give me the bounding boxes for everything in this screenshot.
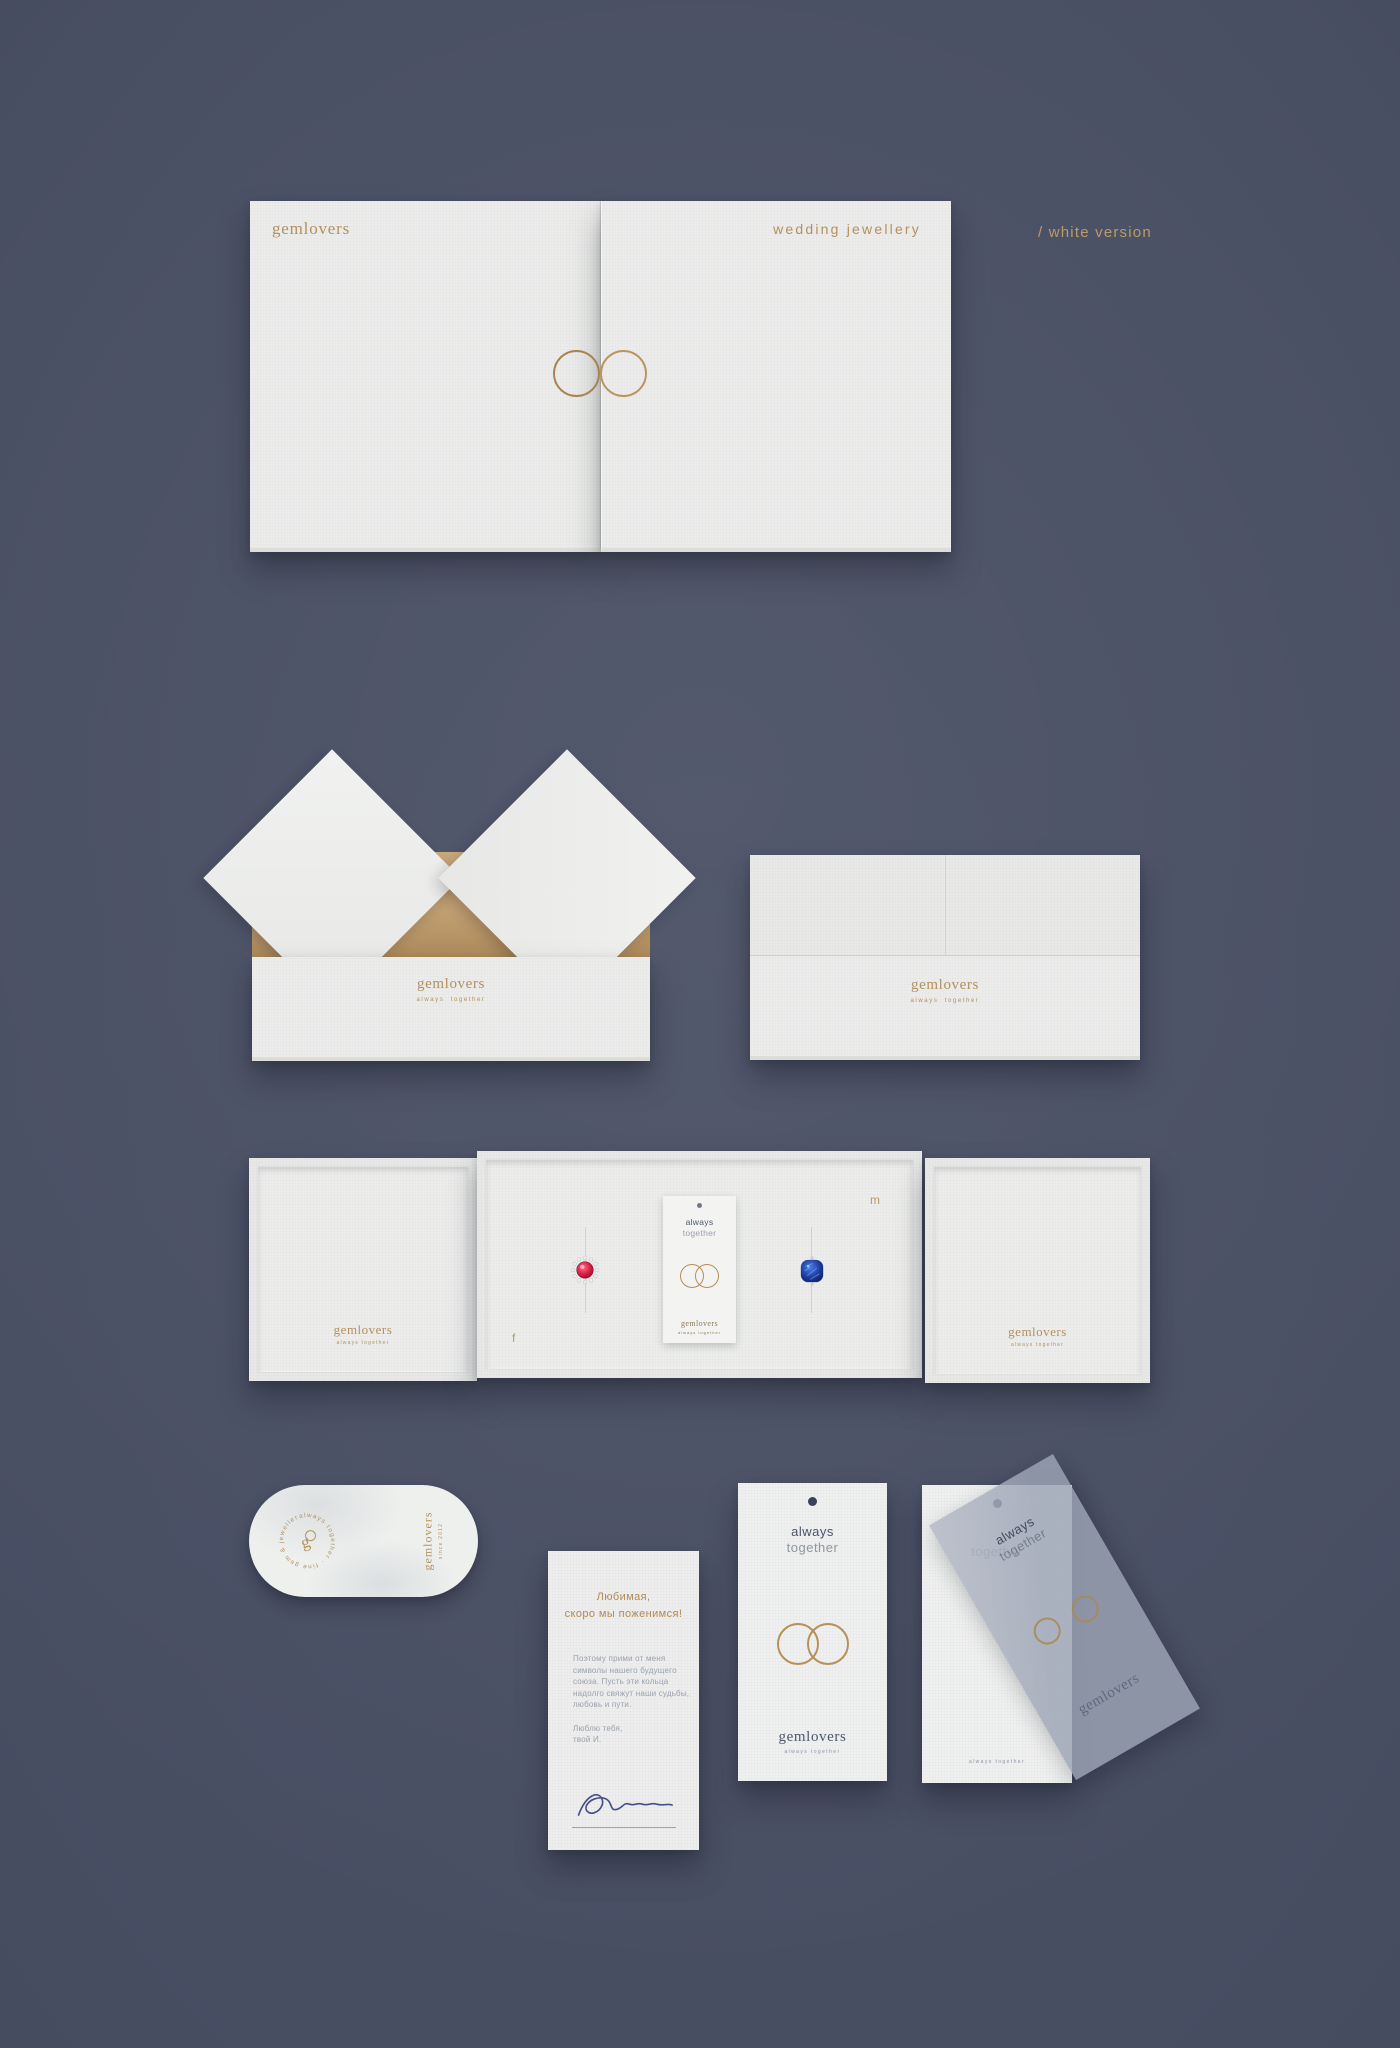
brand-logotype: gemlovers [911, 977, 979, 994]
brand-logotype: gemlovers [779, 1729, 847, 1746]
letter-body-line: надолго свяжут наши судьбы, [573, 1688, 699, 1700]
trifold-left-panel-inner: gemlovers always together [257, 1166, 469, 1373]
tag-hole-icon [808, 1497, 817, 1506]
brand-tagline: always together [1011, 1342, 1064, 1348]
product-label: wedding jewellery [773, 221, 921, 237]
tag-line2: together [787, 1540, 839, 1555]
letter-card: Любимая, скоро мы поженимся! Поэтому при… [548, 1551, 699, 1850]
interlocking-rings-icon [777, 1623, 849, 1665]
brand-logotype: gemlovers [681, 1319, 718, 1328]
sapphire-ring [796, 1255, 828, 1287]
card-line2: together [683, 1228, 717, 1238]
wedding-ring-left-icon [553, 350, 600, 397]
brand-logotype: gemlovers [417, 976, 485, 993]
signature-line [572, 1827, 676, 1828]
brand-tagline: always together [784, 1749, 840, 1755]
brand-logotype: gemlovers [334, 1322, 393, 1338]
letter-closing-line1: Люблю тебя, [573, 1723, 699, 1735]
hang-tag-plain: always together gemlovers always togethe… [738, 1483, 887, 1781]
wedding-ring-right-icon [600, 350, 647, 397]
vellum-brand-logotype: gemlovers [1076, 1670, 1143, 1719]
ruby-stone-icon [577, 1262, 594, 1279]
tray-insert-card: always together gemlovers always togethe… [663, 1196, 736, 1343]
marker-f: f [512, 1331, 515, 1345]
closed-box-back: gemlovers always together [750, 855, 1140, 1060]
lid-seam [945, 855, 946, 955]
closed-box-lid-top [750, 855, 1140, 956]
trifold-right-panel-inner: gemlovers always together [933, 1166, 1142, 1375]
brand-tagline: always together [416, 997, 485, 1003]
interlocking-rings-icon [1029, 1591, 1104, 1650]
pill-sticker: always together · fine gem & jewellery ·… [249, 1485, 478, 1597]
tag-line1: always [791, 1524, 834, 1539]
ruby-ring [567, 1252, 603, 1288]
letter-body-line: символы нашего будущего [573, 1665, 699, 1677]
letter-body-line: союза. Пусть эти кольца [573, 1676, 699, 1688]
letter-heading-line1: Любимая, [597, 1589, 651, 1606]
letter-body-line: Поэтому прими от меня [573, 1653, 699, 1665]
letter-heading-line2: скоро мы поженимся! [565, 1606, 683, 1623]
top-box-right-half: wedding jewellery [601, 201, 951, 552]
version-annotation: / white version [1038, 224, 1152, 241]
closed-box-front-band: gemlovers always together [750, 956, 1140, 1056]
card-line1: always [686, 1217, 714, 1227]
trifold-right-panel: gemlovers always together [925, 1158, 1150, 1383]
card-hole-icon [697, 1203, 702, 1208]
presentation-canvas: gemlovers wedding jewellery / white vers… [0, 0, 1400, 2048]
trifold-left-panel: gemlovers always together [249, 1158, 477, 1381]
open-box-front-panel: gemlovers always together [252, 957, 650, 1061]
brand-tagline: always together [336, 1340, 389, 1346]
interlocking-rings-icon [680, 1264, 719, 1288]
top-box-left-half: gemlovers [250, 201, 601, 552]
brand-logotype: gemlovers [272, 219, 350, 239]
marker-m: m [870, 1193, 880, 1207]
circular-emblem: always together · fine gem & jewellery ·… [263, 1497, 351, 1585]
sapphire-stone-icon [801, 1260, 824, 1283]
letter-closing-line2: твой И. [573, 1734, 699, 1746]
trifold-center-tray: always together gemlovers always togethe… [477, 1151, 922, 1378]
sticker-brand-vertical: gemlovers [421, 1512, 436, 1571]
letter-body-line: любовь и пути. [573, 1699, 699, 1711]
brand-logotype: gemlovers [1008, 1324, 1067, 1340]
signature-icon [569, 1786, 679, 1826]
brand-tagline: always together [910, 998, 979, 1004]
brand-tagline: always together [678, 1330, 721, 1335]
brand-tagline: always together [969, 1759, 1025, 1765]
sticker-since-vertical: since 2012 [438, 1523, 444, 1559]
